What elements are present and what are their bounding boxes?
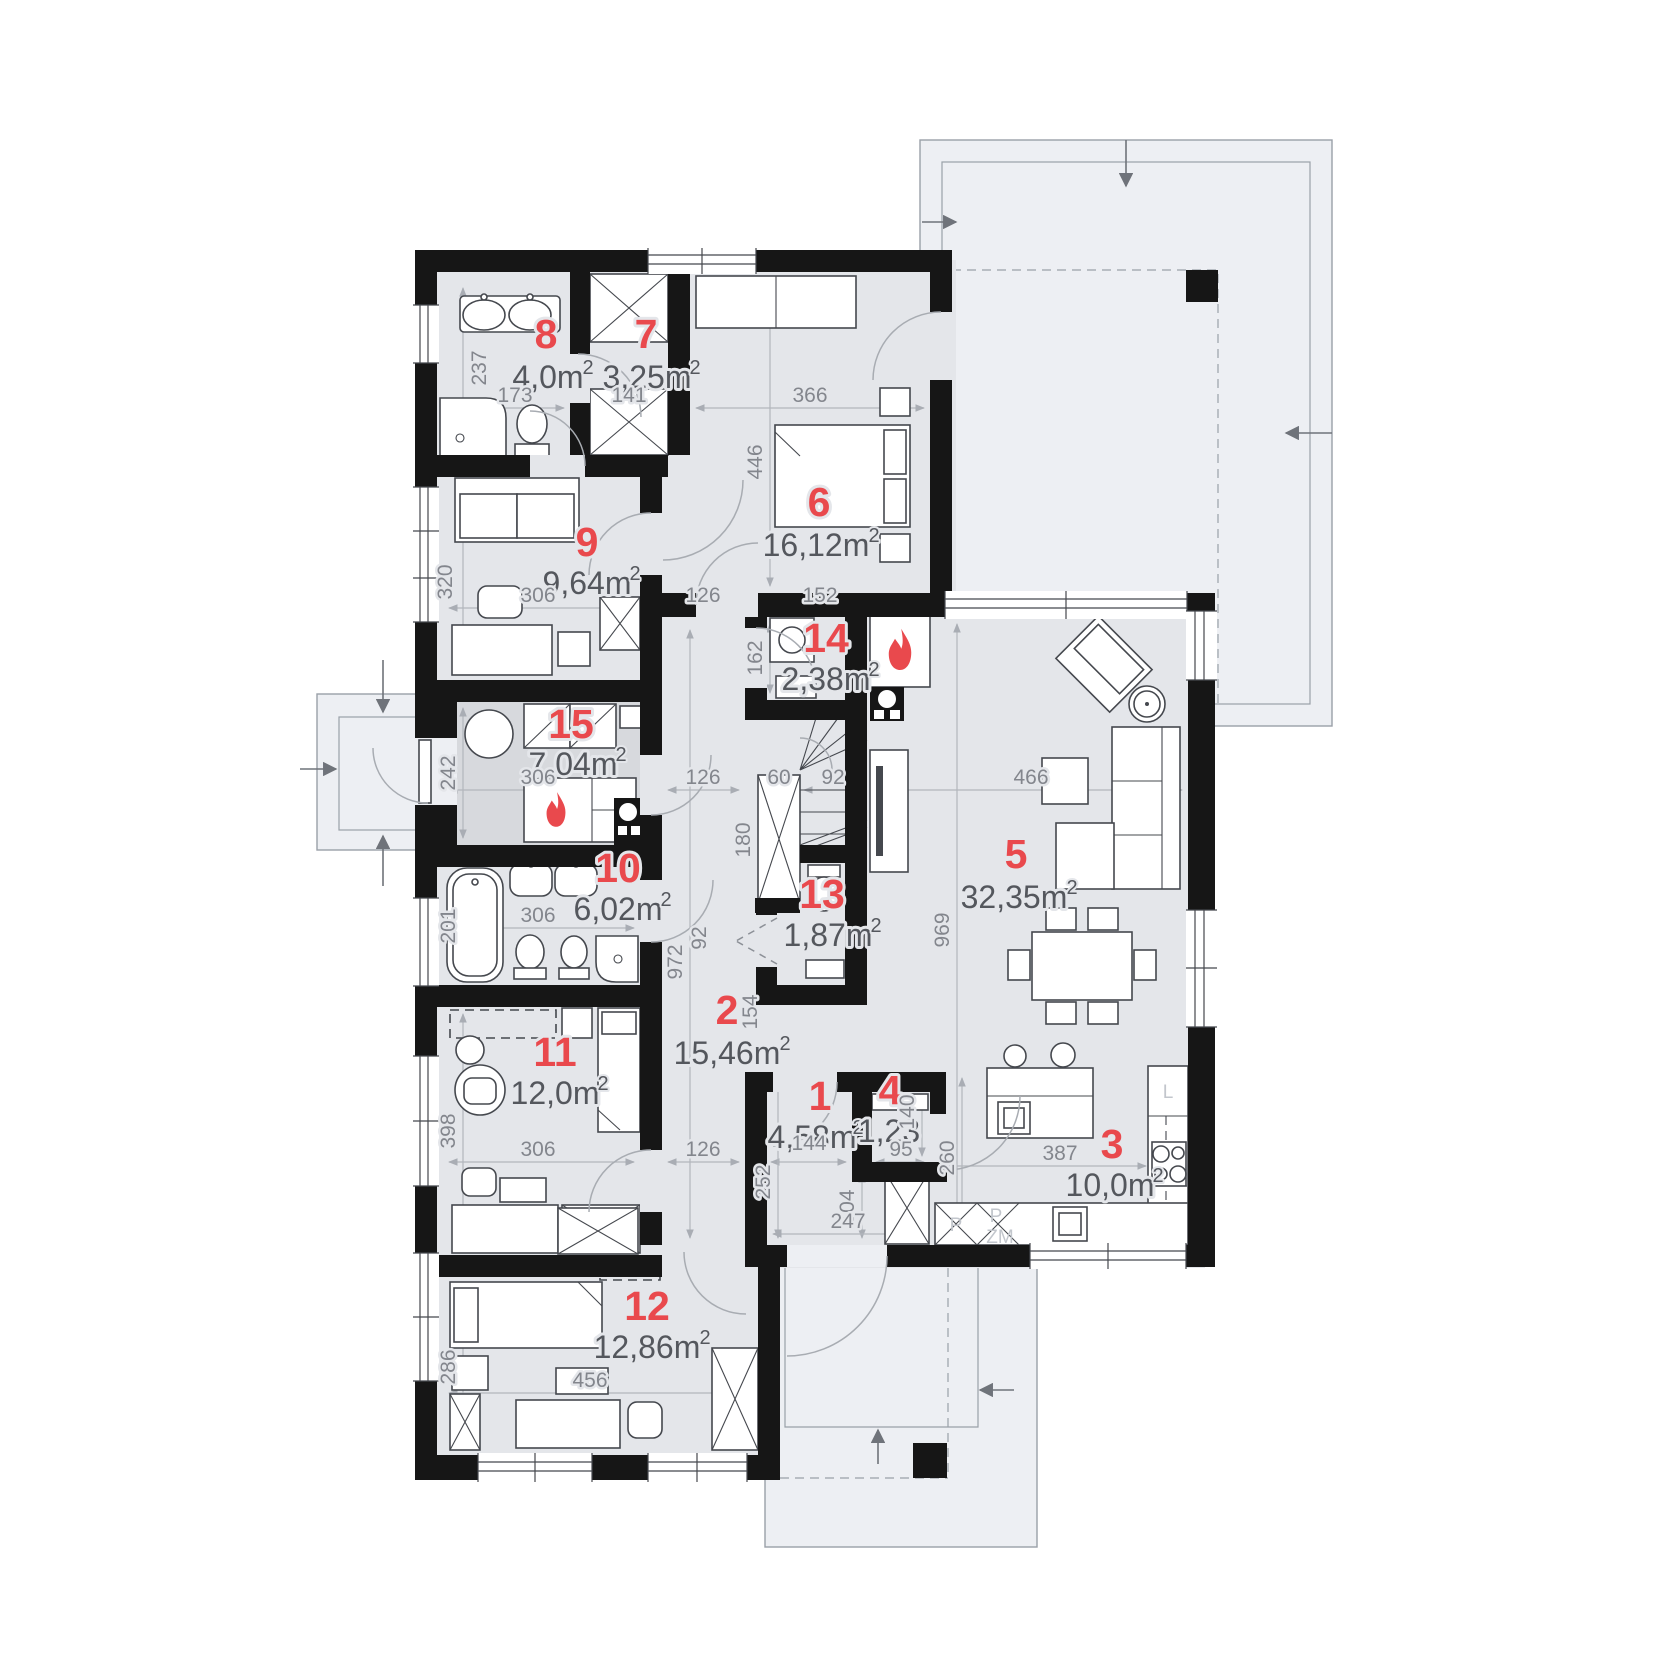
dim: 126	[685, 584, 720, 607]
porch-bottom	[765, 1267, 1037, 1547]
dim: 180	[732, 822, 755, 857]
sup: 2	[699, 1327, 710, 1349]
sup: 2	[582, 357, 593, 379]
sup: 2	[660, 889, 671, 911]
dim: 126	[685, 766, 720, 789]
dim: 456	[572, 1369, 607, 1392]
window	[1186, 611, 1217, 680]
dim: 306	[520, 584, 555, 607]
dim: 398	[437, 1113, 460, 1148]
sofa	[1112, 727, 1180, 889]
window	[413, 305, 439, 363]
floor-plan-svg: 1 4,58m 2 2 15,46m 2 3 10,0m 2 4 1,23 5 …	[0, 0, 1680, 1680]
sup: 2	[597, 1073, 608, 1095]
window	[413, 487, 439, 622]
desk	[452, 625, 552, 675]
porch-post	[913, 1443, 947, 1478]
fridge-label: L	[1163, 1082, 1174, 1103]
dim: 387	[1042, 1142, 1077, 1165]
shower	[596, 936, 638, 982]
chair	[462, 1168, 496, 1196]
window	[413, 1253, 439, 1381]
desk	[516, 1400, 620, 1448]
sup: 2	[629, 563, 640, 585]
dim: 152	[802, 584, 837, 607]
room-area: 6,02m	[574, 891, 663, 927]
dim: 144	[791, 1132, 826, 1155]
room-number: 13	[799, 871, 845, 917]
room-number: 14	[803, 615, 849, 661]
room-number: 10	[595, 845, 641, 891]
room-area: 10,0m	[1066, 1167, 1155, 1203]
stool	[1051, 1043, 1075, 1067]
chair	[628, 1402, 662, 1438]
sup: 2	[868, 525, 879, 547]
cabinet-label: P	[950, 1215, 963, 1236]
room-number: 7	[635, 311, 658, 357]
dim: 446	[744, 444, 767, 479]
room-area: 2,38m	[782, 661, 871, 697]
dim: 466	[1013, 766, 1048, 789]
window	[648, 1453, 747, 1482]
desk	[452, 1205, 558, 1253]
sup: 2	[689, 357, 700, 379]
dining-table	[1032, 932, 1132, 1000]
oven	[1053, 1207, 1087, 1241]
cabinet-label: ZM	[986, 1227, 1013, 1248]
dim: 162	[744, 640, 767, 675]
dim: 92	[688, 926, 711, 949]
sup: 2	[1066, 877, 1077, 899]
room-number: 12	[624, 1283, 670, 1329]
room-area: 32,35m	[961, 879, 1068, 915]
window	[1186, 910, 1217, 1027]
floor-plan-page: 1 4,58m 2 2 15,46m 2 3 10,0m 2 4 1,23 5 …	[0, 0, 1680, 1680]
sup: 2	[1152, 1165, 1163, 1187]
monitor	[500, 1178, 546, 1202]
dim: 247	[830, 1210, 865, 1233]
dim: 252	[752, 1164, 775, 1199]
tv-bench	[870, 750, 908, 872]
dim: 237	[468, 350, 491, 385]
window	[413, 1056, 439, 1186]
stool	[456, 1036, 484, 1064]
terrace-post	[1186, 270, 1218, 302]
dim: 306	[520, 1138, 555, 1161]
dim: 306	[520, 766, 555, 789]
dim: 201	[437, 908, 460, 943]
sup: 2	[615, 744, 626, 766]
stool	[1004, 1045, 1026, 1067]
dim: 242	[437, 755, 460, 790]
cabinet-label: P	[990, 1206, 1003, 1227]
dim: 306	[520, 904, 555, 927]
dim: 154	[739, 994, 762, 1029]
dim: 173	[497, 384, 532, 407]
window	[945, 591, 1187, 619]
room-area: 12,0m	[511, 1075, 600, 1111]
room-number: 11	[533, 1029, 576, 1075]
room-area: 12,86m	[594, 1329, 701, 1365]
dim: 141	[611, 384, 646, 407]
dim: 972	[664, 944, 687, 979]
dim: 140	[896, 1094, 919, 1129]
room-number: 1	[809, 1073, 832, 1119]
dim: 92	[821, 766, 844, 789]
window	[648, 248, 756, 274]
coffee-table	[1042, 758, 1088, 804]
room-number: 3	[1101, 1121, 1124, 1167]
dim: 969	[931, 912, 954, 947]
boiler	[465, 710, 513, 758]
dim: 95	[889, 1138, 912, 1161]
dim: 60	[767, 766, 790, 789]
sup: 2	[868, 659, 879, 681]
window	[478, 1453, 592, 1482]
tv	[876, 766, 883, 856]
sink	[806, 960, 844, 978]
dim: 320	[434, 564, 457, 599]
room-number: 9	[576, 519, 599, 565]
dim: 260	[936, 1140, 959, 1175]
chair	[478, 586, 522, 618]
room-area: 16,12m	[763, 527, 870, 563]
room-number: 6	[808, 479, 831, 525]
room-number: 2	[716, 987, 739, 1033]
room-area: 1,87m	[784, 917, 873, 953]
room-area: 9,64m	[543, 565, 632, 601]
room-number: 8	[535, 311, 558, 357]
dim: 286	[437, 1349, 460, 1384]
dim: 126	[685, 1138, 720, 1161]
room-number: 15	[548, 701, 594, 747]
shower	[440, 398, 506, 456]
dim: 366	[792, 384, 827, 407]
toilet	[516, 935, 544, 969]
sup: 2	[779, 1033, 790, 1055]
window	[413, 898, 439, 986]
entry-door-leaf	[419, 740, 431, 803]
window	[1030, 1243, 1186, 1269]
sup: 2	[870, 915, 881, 937]
room-area: 15,46m	[674, 1035, 781, 1071]
room-number: 5	[1005, 831, 1028, 877]
bidet	[561, 936, 587, 968]
